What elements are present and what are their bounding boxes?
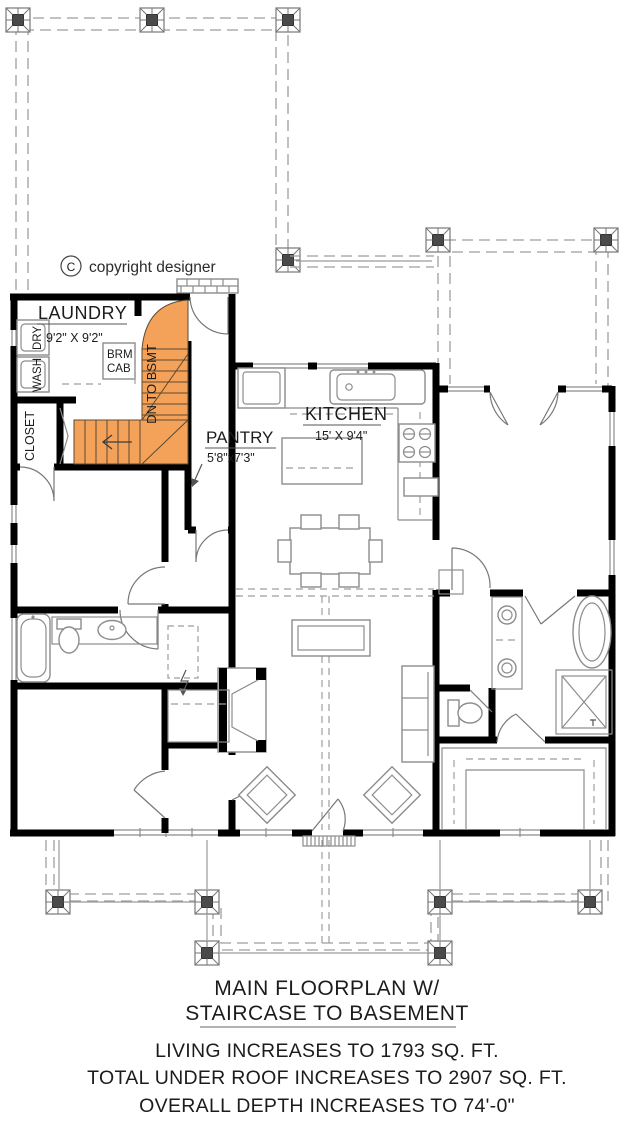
- pantry-dims: 5'8"x7'3": [207, 451, 255, 465]
- porch-top-right: [426, 228, 618, 386]
- copyright-text: copyright designer: [89, 259, 216, 276]
- caption-note-depth: OVERALL DEPTH INCREASES TO 74'-0": [139, 1095, 515, 1117]
- range: [399, 424, 435, 462]
- laundry-dims: 9'2" X 9'2": [46, 331, 103, 345]
- dining-table: [290, 528, 370, 574]
- pantry-pointer: [191, 464, 202, 487]
- porch-bottom: [46, 840, 608, 965]
- accent-chair-right: [364, 767, 421, 824]
- dining-furniture: [278, 478, 438, 587]
- accent-chair-left: [239, 767, 296, 824]
- sofa-center: [292, 620, 370, 656]
- stair-label: DN TO BSMT: [144, 344, 159, 424]
- master-tub: [573, 596, 611, 668]
- laundry-label: LAUNDRY: [38, 303, 127, 323]
- caption: MAIN FLOORPLAN W/ STAIRCASE TO BASEMENT …: [87, 977, 567, 1117]
- attic-access: [168, 626, 198, 678]
- dryer-label: DRY: [32, 326, 44, 350]
- copyright-symbol: C: [67, 260, 76, 274]
- brm-cab-line1: BRM: [107, 349, 133, 361]
- washer-label: WASH: [32, 358, 44, 392]
- caption-note-roof: TOTAL UNDER ROOF INCREASES TO 2907 SQ. F…: [87, 1067, 567, 1089]
- pantry-label: PANTRY: [206, 428, 273, 447]
- copyright-stamp: C copyright designer: [61, 256, 216, 276]
- toilet: [57, 619, 81, 653]
- shower: [556, 670, 612, 734]
- walkin-closet: [442, 748, 606, 830]
- floorplan-drawing: C copyright designer LAUNDRY 9'2" X 9'2"…: [0, 0, 631, 1122]
- porch-top-left: [6, 8, 434, 290]
- fireplace: [218, 668, 266, 752]
- hall-bathroom: [17, 614, 157, 682]
- basement-staircase: [74, 300, 188, 464]
- living-furniture: [218, 620, 434, 846]
- bath-sink: [98, 621, 126, 640]
- bathtub: [17, 614, 50, 682]
- kitchen-island: [282, 438, 362, 484]
- caption-note-living: LIVING INCREASES TO 1793 SQ. FT.: [155, 1040, 499, 1062]
- refrigerator: [238, 368, 285, 408]
- caption-title-line1: MAIN FLOORPLAN W/: [214, 977, 440, 1000]
- master-toilet: [448, 700, 482, 726]
- master-bathroom: [448, 596, 612, 734]
- caption-title-line2: STAIRCASE TO BASEMENT: [185, 1002, 469, 1025]
- sofa-east: [402, 666, 434, 762]
- kitchen-dims: 15' X 9'4": [315, 429, 367, 443]
- closet-label: CLOSET: [23, 411, 37, 461]
- floorplan-sheet: C copyright designer LAUNDRY 9'2" X 9'2"…: [0, 0, 631, 1122]
- kitchen-label: KITCHEN: [305, 404, 388, 424]
- brm-cab-line2: CAB: [107, 363, 131, 375]
- kitchen-sink: [330, 370, 425, 404]
- cabinet: [404, 478, 438, 496]
- brick-stoop: [177, 279, 238, 293]
